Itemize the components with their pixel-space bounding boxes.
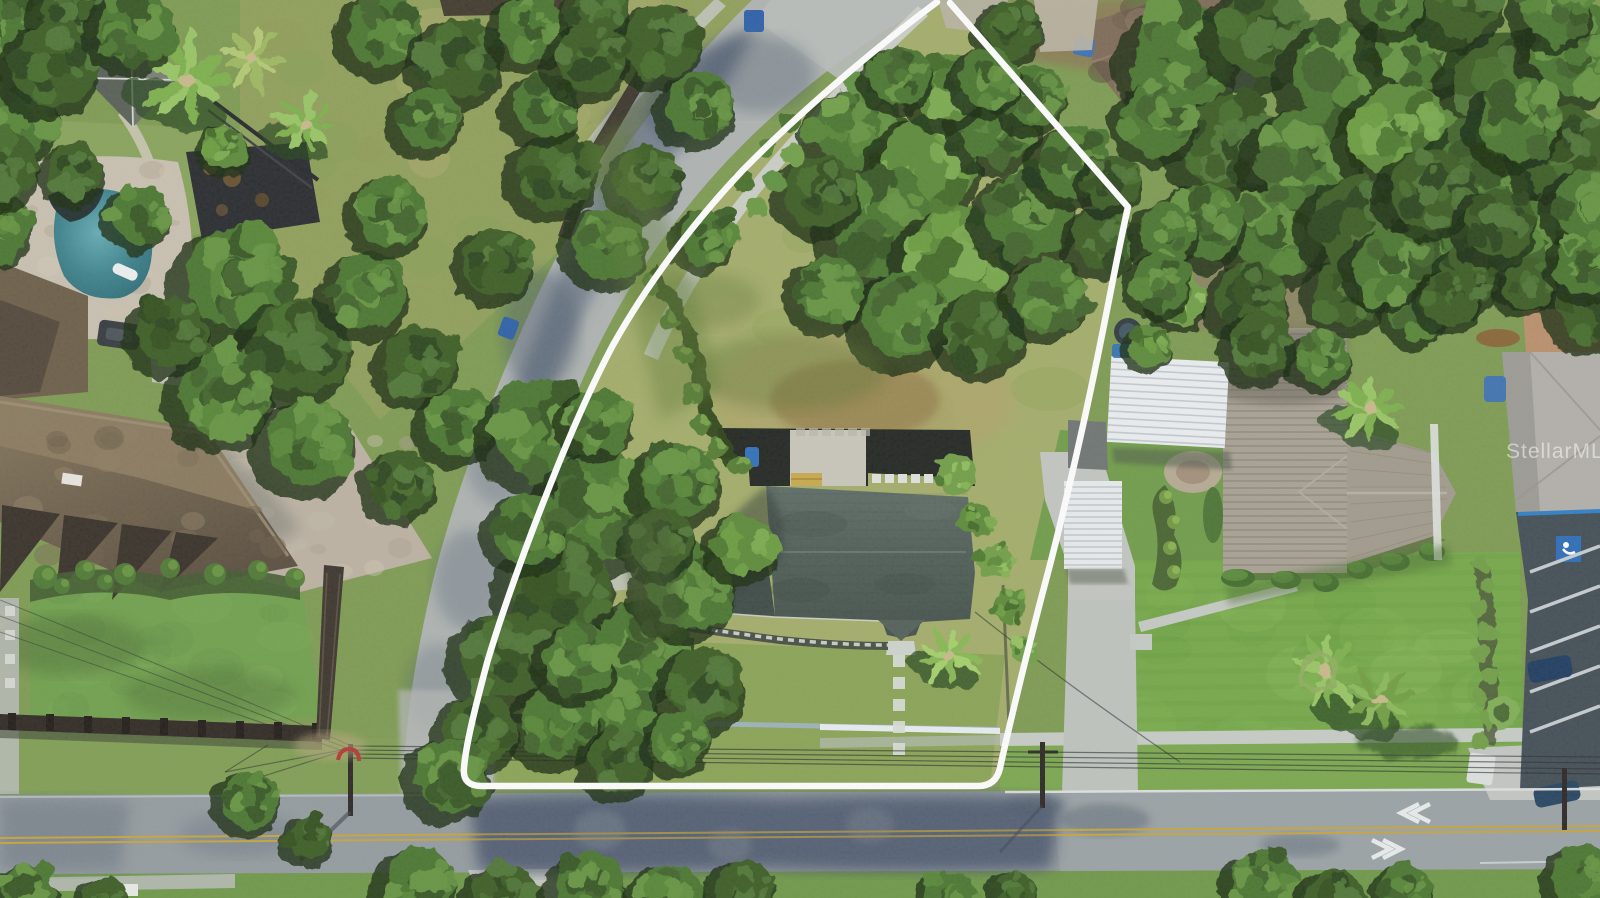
- svg-text:StellarMLS: StellarMLS: [1506, 440, 1600, 463]
